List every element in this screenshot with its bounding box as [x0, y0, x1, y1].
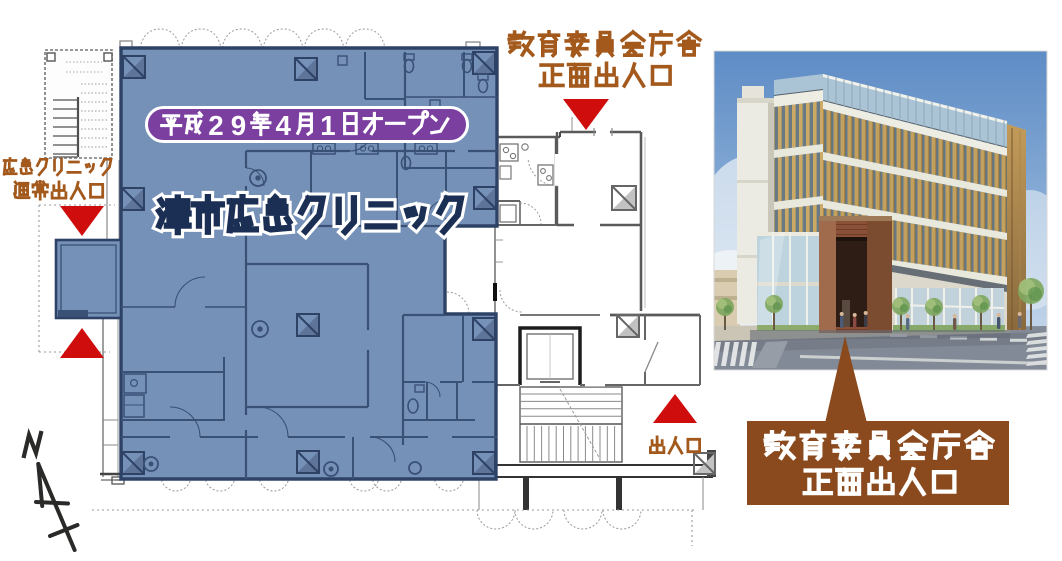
- svg-text:4: 4: [275, 110, 291, 141]
- svg-text:2: 2: [208, 110, 223, 141]
- svg-text:1: 1: [320, 110, 335, 141]
- svg-text:9: 9: [231, 110, 246, 141]
